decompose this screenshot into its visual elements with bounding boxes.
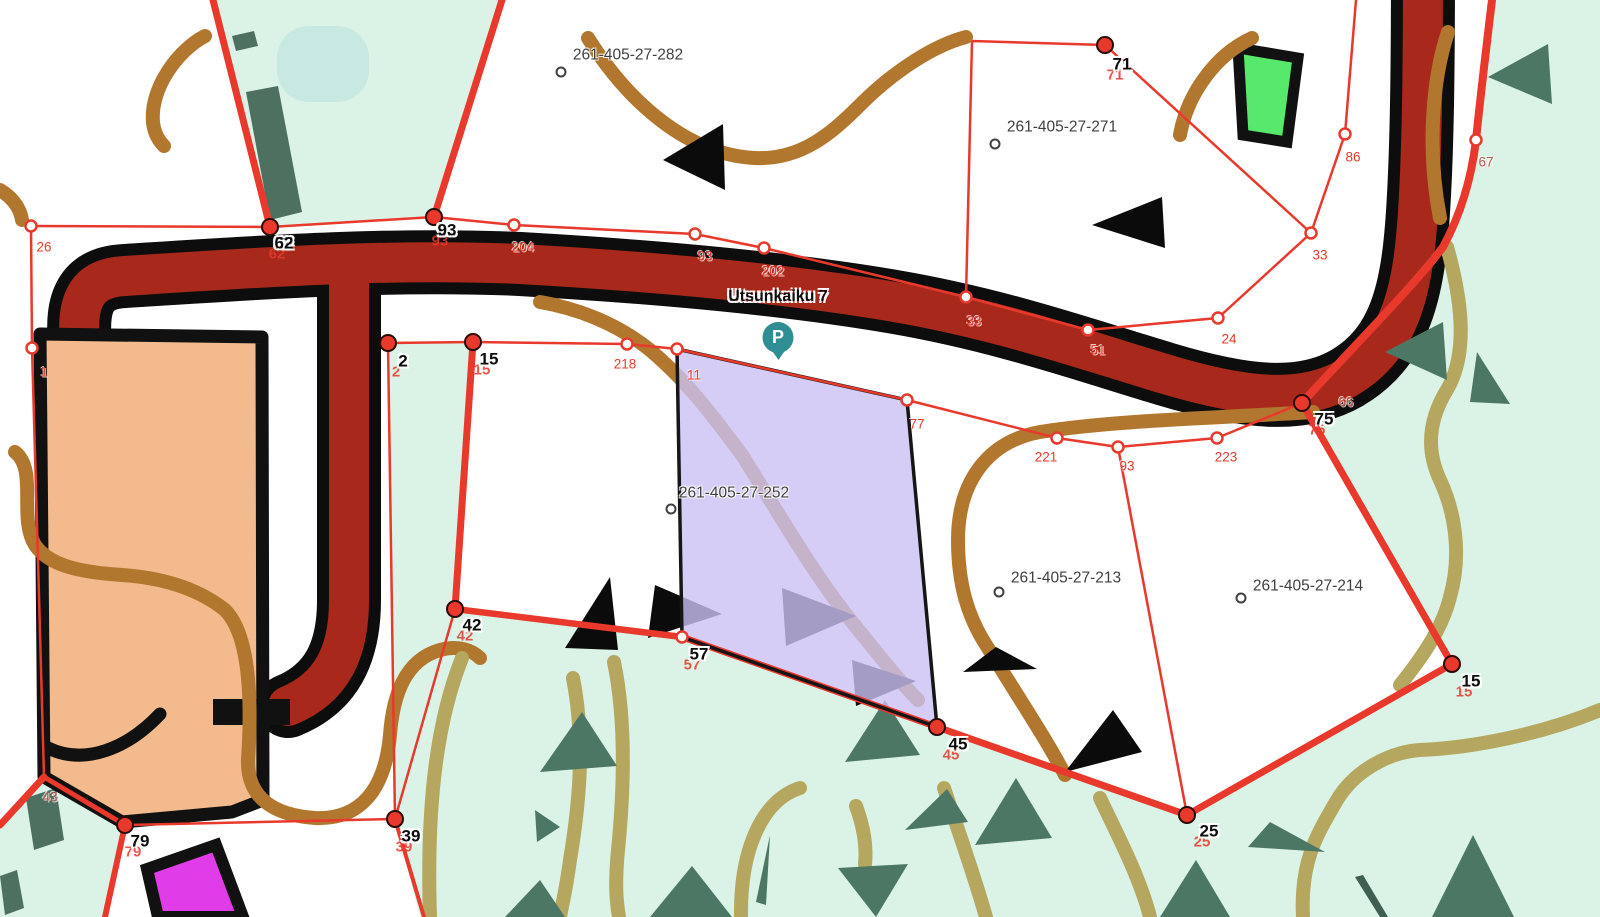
parking-marker[interactable]: P	[763, 322, 794, 353]
map-canvas[interactable]: Utsunkaiku 7 626293937171221515424257574…	[0, 0, 1600, 917]
pond-area	[277, 26, 369, 102]
building-footprint-green	[1238, 48, 1298, 142]
parking-marker-letter: P	[763, 322, 794, 353]
map-graphics	[0, 0, 1600, 917]
